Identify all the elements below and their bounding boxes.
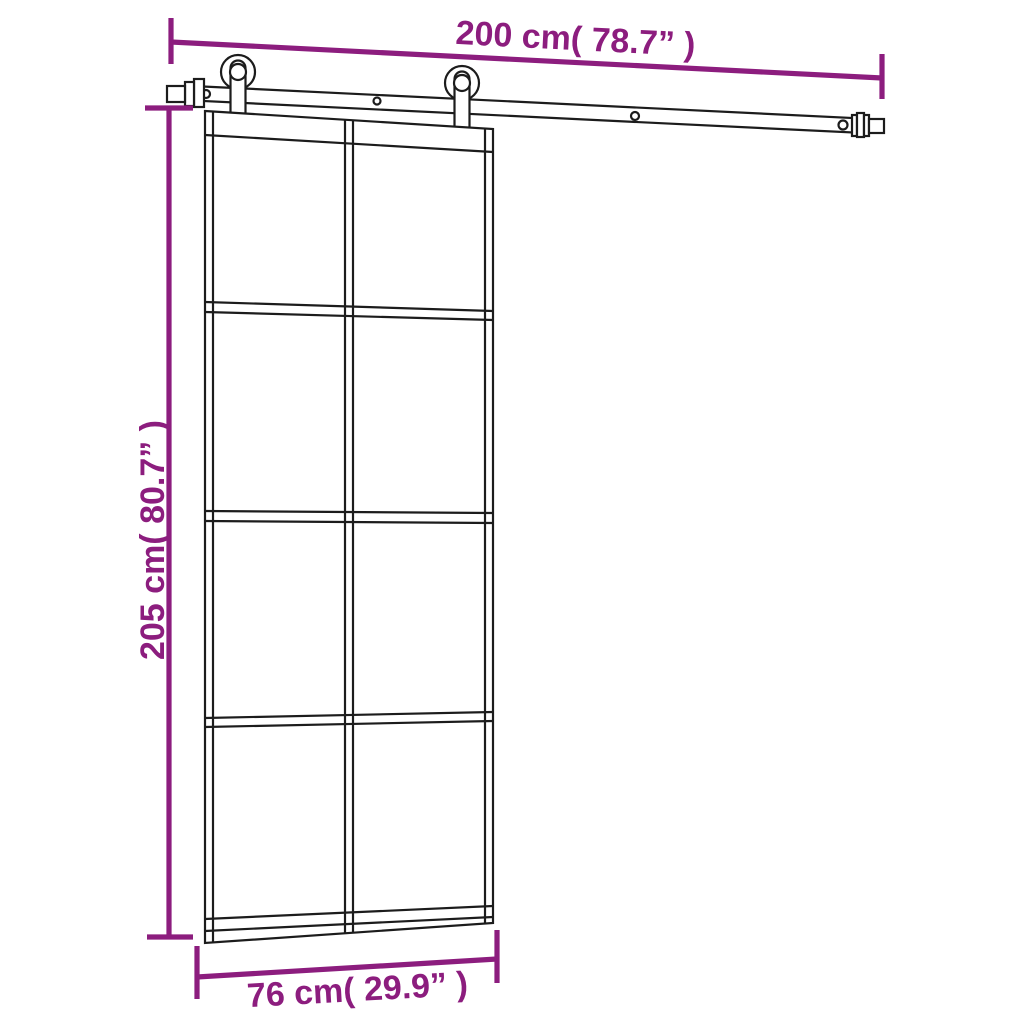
end-stop-ring bbox=[185, 82, 194, 106]
roller-wheel-right bbox=[445, 66, 479, 128]
rail-screw-hole bbox=[839, 121, 848, 130]
diagram-svg: 200 cm( 78.7” ) 205 cm( 80.7” ) 76 cm( 2… bbox=[0, 0, 1024, 1024]
door-frame-outline bbox=[205, 111, 493, 943]
end-stop-cap bbox=[869, 119, 884, 133]
door-height-dimension: 205 cm( 80.7” ) bbox=[134, 108, 193, 937]
product-dimension-diagram: 200 cm( 78.7” ) 205 cm( 80.7” ) 76 cm( 2… bbox=[0, 0, 1024, 1024]
rail-screw-hole bbox=[374, 98, 381, 105]
door-width-dimension: 76 cm( 29.9” ) bbox=[197, 930, 497, 1015]
rail-end-stop-left bbox=[167, 79, 204, 107]
rail-screw-hole bbox=[631, 112, 639, 120]
rail-width-dimension: 200 cm( 78.7” ) bbox=[171, 14, 882, 99]
roller-hub-left bbox=[230, 64, 246, 80]
door-height-label: 205 cm( 80.7” ) bbox=[134, 420, 172, 660]
end-stop-ring bbox=[194, 79, 204, 107]
sliding-door bbox=[205, 111, 493, 943]
roller-wheel-left bbox=[221, 55, 255, 115]
rail-end-stop-right bbox=[852, 113, 884, 137]
roller-hub-right bbox=[454, 75, 470, 91]
end-stop-cap bbox=[167, 86, 185, 102]
